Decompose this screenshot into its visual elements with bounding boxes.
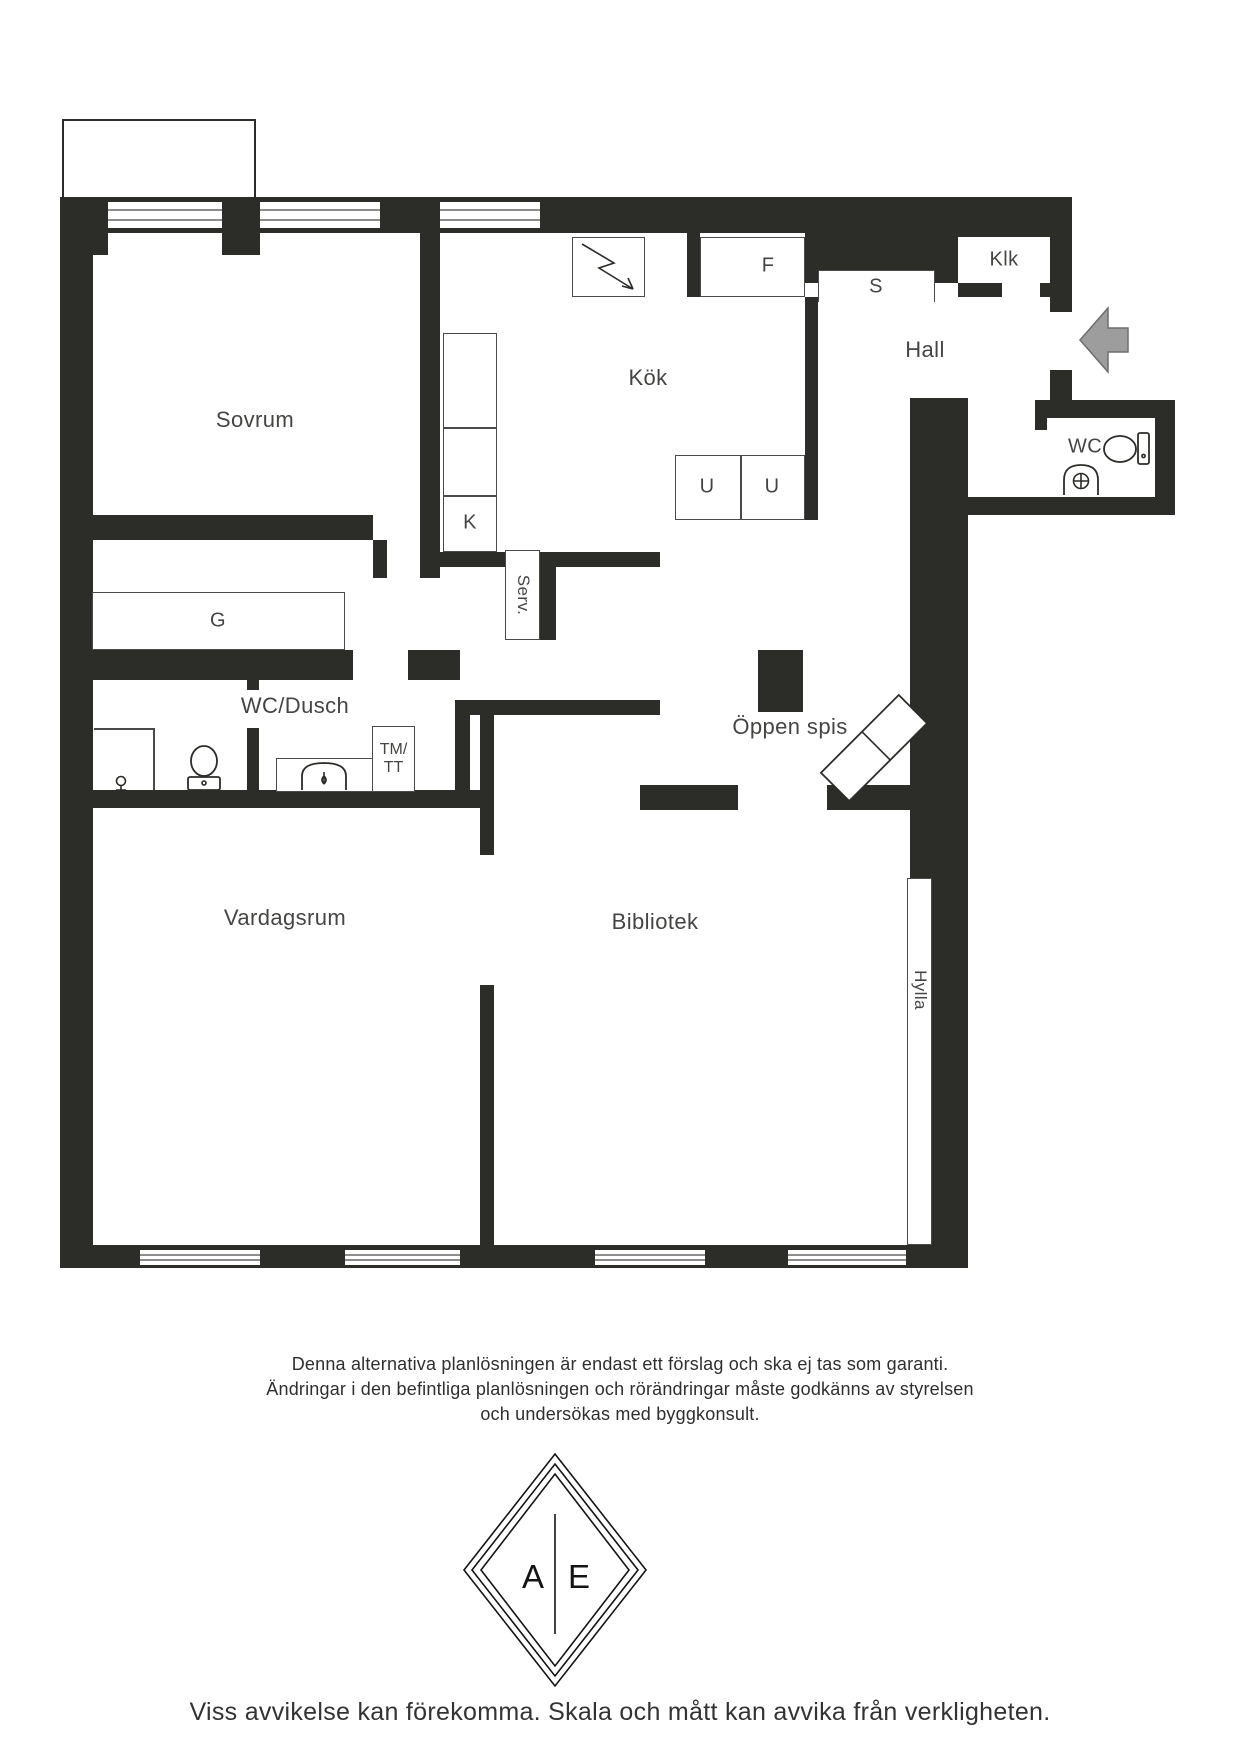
wall xyxy=(247,728,259,790)
sink-icon xyxy=(1060,460,1102,497)
counter-divider xyxy=(443,427,497,429)
fixture-label-k: K xyxy=(463,512,477,535)
wall xyxy=(687,233,700,297)
fridge-cabinet xyxy=(700,237,805,297)
fixture-label-f: F xyxy=(762,255,775,278)
wall xyxy=(373,540,387,578)
wall xyxy=(420,552,505,567)
shower-screen xyxy=(94,728,154,730)
room-label-vardagsrum: Vardagsrum xyxy=(224,905,346,931)
wall xyxy=(1035,400,1175,418)
toilet-side-icon xyxy=(1100,430,1154,470)
window xyxy=(788,1250,906,1265)
wall xyxy=(932,878,968,1268)
logo-letter-e: E xyxy=(568,1558,590,1595)
oven-divider xyxy=(740,455,742,520)
wall xyxy=(408,650,460,680)
disclaimer-line-1: Denna alternativa planlösningen är endas… xyxy=(0,1352,1240,1377)
wall xyxy=(1050,370,1072,400)
wall xyxy=(455,700,470,790)
window xyxy=(595,1250,705,1265)
lightning-icon xyxy=(572,237,645,297)
wall xyxy=(640,785,738,810)
toilet-top-icon xyxy=(184,744,224,794)
diamond-logo: A E xyxy=(462,1452,648,1688)
room-label-hall: Hall xyxy=(905,337,945,363)
window xyxy=(440,202,540,228)
room-label-sovrum: Sovrum xyxy=(216,407,294,433)
fixture-label-g: G xyxy=(210,610,226,633)
wall-pier xyxy=(222,233,260,255)
fixture-label-tm-tt: TM/ TT xyxy=(372,726,415,792)
wall xyxy=(1050,233,1072,312)
floorplan-page: { "floorplan": { "rooms": { "sovrum": {"… xyxy=(0,0,1240,1754)
disclaimer-line-2: Ändringar i den befintliga planlösningen… xyxy=(0,1377,1240,1402)
wall xyxy=(805,297,818,520)
fixture-label-serv: Serv. xyxy=(513,575,533,615)
wall xyxy=(540,567,556,640)
wall xyxy=(958,283,1002,297)
shower-drain-icon xyxy=(112,774,130,794)
shower-screen xyxy=(153,728,155,790)
fireplace-icon xyxy=(810,690,940,810)
wall xyxy=(60,650,353,680)
room-label-wc-dusch: WC/Dusch xyxy=(241,693,349,719)
fixture-label-s: S xyxy=(869,276,883,299)
wall xyxy=(758,650,803,712)
bookshelf-hylla xyxy=(907,878,932,1245)
room-label-wc: WC xyxy=(1068,436,1102,459)
wall xyxy=(420,233,440,578)
wall xyxy=(540,552,660,567)
window xyxy=(260,202,380,228)
wall xyxy=(965,497,1175,515)
room-label-klk: Klk xyxy=(990,249,1019,272)
fixture-label-u2: U xyxy=(765,476,780,499)
room-label-bibliotek: Bibliotek xyxy=(612,909,699,935)
vanity-sink-icon xyxy=(296,760,352,792)
wall xyxy=(480,715,494,855)
wall xyxy=(60,197,93,1268)
tm-line1: TM/ xyxy=(380,741,408,759)
tm-line2: TT xyxy=(384,759,404,777)
counter-divider xyxy=(443,495,497,497)
window xyxy=(108,202,222,228)
disclaimer-line-3: och undersökas med byggkonsult. xyxy=(0,1402,1240,1427)
wall xyxy=(247,680,259,690)
wall xyxy=(455,700,660,715)
wall-pier xyxy=(60,233,108,255)
window xyxy=(345,1250,460,1265)
wall xyxy=(60,515,373,540)
disclaimer-text: Denna alternativa planlösningen är endas… xyxy=(0,1352,1240,1427)
window xyxy=(140,1250,260,1265)
entry-arrow-icon xyxy=(1076,298,1132,382)
wall xyxy=(1040,283,1072,297)
fixture-label-hylla: Hylla xyxy=(910,970,930,1010)
fixture-label-u1: U xyxy=(700,476,715,499)
footer-caption: Viss avvikelse kan förekomma. Skala och … xyxy=(0,1698,1240,1727)
logo-letter-a: A xyxy=(522,1558,544,1595)
wall xyxy=(480,985,494,1245)
room-label-oppen-spis: Öppen spis xyxy=(732,714,847,740)
wall xyxy=(1035,418,1047,430)
room-label-kok: Kök xyxy=(628,365,667,391)
